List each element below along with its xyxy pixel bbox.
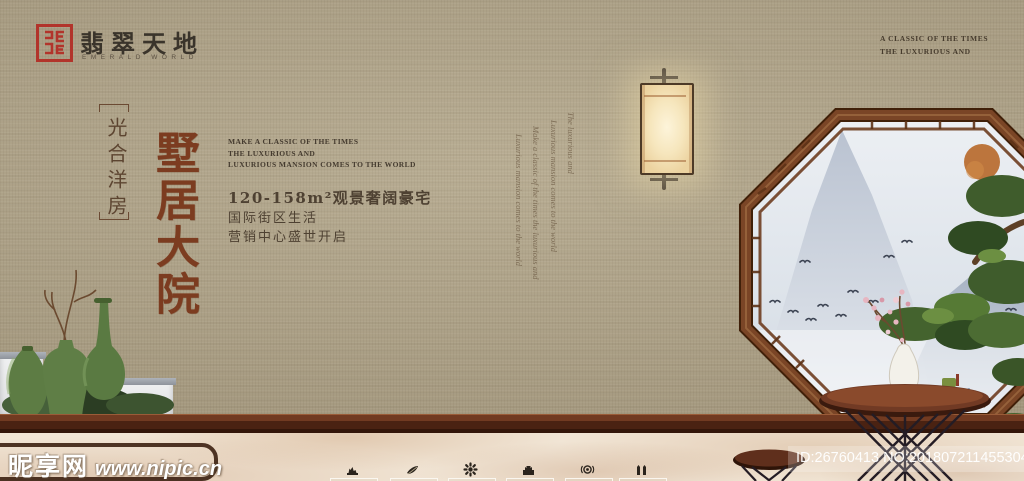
id-watermark-text: ID:26760413 NO:20180721145530423000 (796, 450, 1024, 466)
intro-english-block: MAKE A CLASSIC OF THE TIMES THE LUXURIOU… (228, 136, 416, 171)
target-icon (580, 462, 595, 477)
site-watermark-url: www.nipic.cn (95, 458, 222, 480)
caption-line-1: A CLASSIC OF THE TIMES (880, 32, 1024, 45)
intro-en-line1: MAKE A CLASSIC OF THE TIMES (228, 136, 416, 148)
lamp-trim-top (644, 95, 686, 97)
lamp-trim-bottom (644, 160, 686, 162)
lamp-bracket-top (650, 76, 678, 79)
castle-icon (521, 462, 536, 477)
bracket-top-decoration (99, 104, 129, 112)
intro-en-line3: LUXURIOUS MANSION COMES TO THE WORLD (228, 159, 416, 171)
main-headline-vertical: 墅居大院 (141, 130, 205, 318)
script-column-2: Make a classic of the times the luxuriou… (531, 126, 541, 279)
green-vases (0, 262, 135, 420)
site-watermark-cn: 昵享网 (8, 453, 89, 481)
real-estate-poster: 翡翠天地 EMERALD WORLD A CLASSIC OF THE TIME… (0, 0, 1024, 481)
blossom-stems (868, 296, 906, 352)
selling-point-life: 国际街区生活 (228, 207, 318, 226)
meiping-vase (43, 340, 89, 418)
sub-headline-vertical: 光合洋房 (102, 117, 131, 221)
hand-leaf-icon (405, 462, 420, 477)
lamp-bracket-bottom (650, 178, 678, 181)
brand-name-english: EMERALD WORLD (82, 54, 198, 61)
brand-seal-icon (36, 24, 73, 62)
pavilion-icon (345, 462, 360, 477)
vase-group (8, 298, 125, 418)
site-watermark: 昵享网www.nipic.cn (8, 447, 222, 481)
teardrop-vase (9, 347, 48, 418)
long-neck-vase (83, 302, 125, 400)
top-right-caption: A CLASSIC OF THE TIMES THE LUXURIOUS AND (880, 32, 1024, 58)
twin-towers-icon (634, 462, 649, 477)
script-column-3: Luxurious mansion comes to the world (549, 120, 559, 252)
script-column-1: Luxurious mansion comes to the world (514, 134, 524, 266)
caption-line-2: THE LUXURIOUS AND (880, 45, 1024, 58)
flower-icon (463, 462, 478, 477)
script-column-4: The luxurious and (566, 112, 576, 174)
selling-point-area: 120-158m²观景奢阔豪宅 (228, 187, 432, 208)
dry-branches (45, 270, 96, 342)
selling-point-opening: 营销中心盛世开启 (228, 226, 348, 245)
bracket-bottom-decoration (99, 212, 129, 220)
intro-en-line2: THE LUXURIOUS AND (228, 148, 416, 160)
